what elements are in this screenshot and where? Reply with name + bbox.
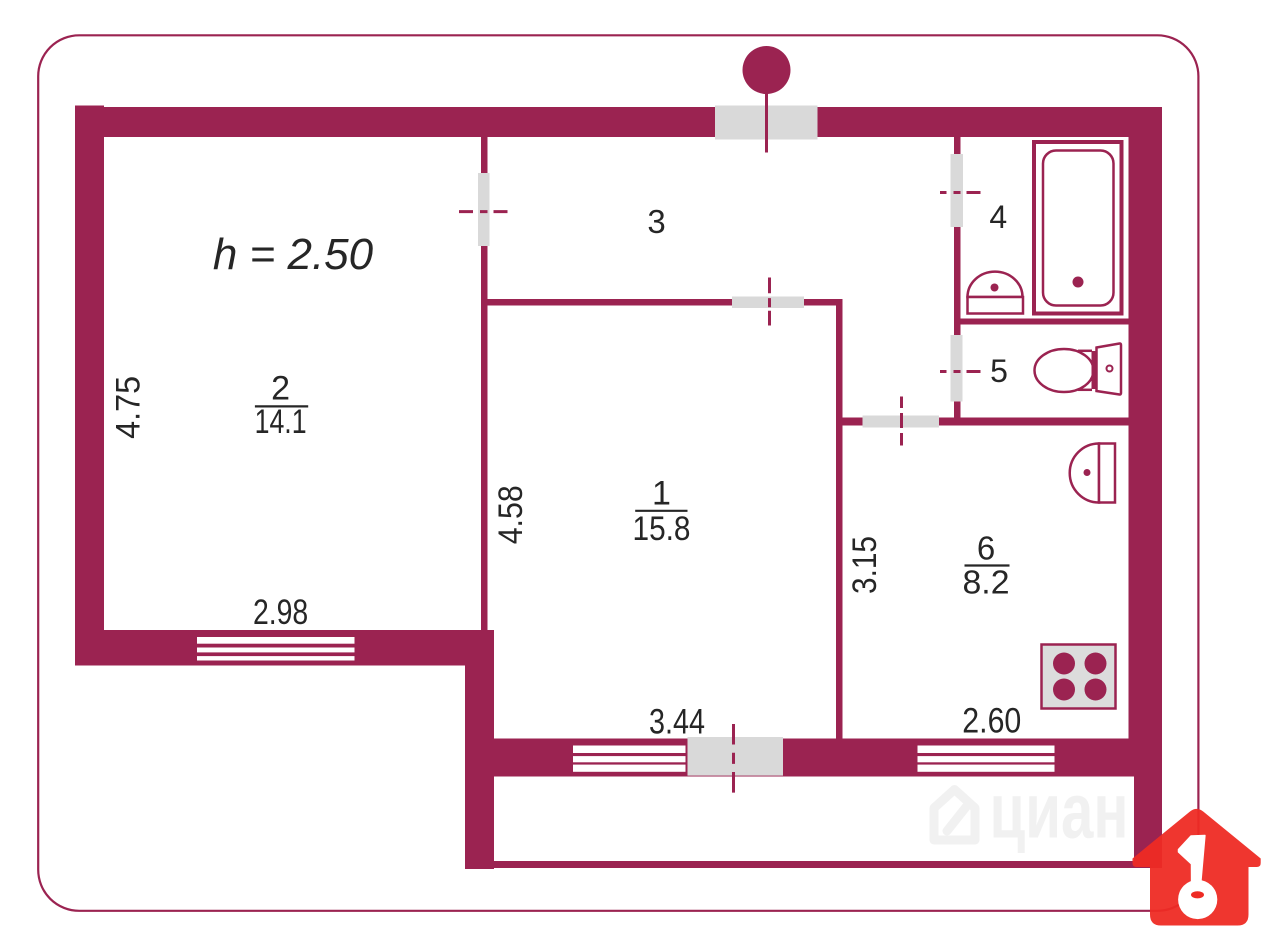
svg-text:6: 6: [977, 530, 995, 567]
svg-text:2.98: 2.98: [253, 593, 308, 632]
svg-text:4: 4: [989, 199, 1007, 235]
svg-text:15.8: 15.8: [633, 510, 691, 548]
svg-text:1: 1: [652, 474, 671, 512]
svg-text:2.60: 2.60: [962, 702, 1021, 741]
svg-text:3.44: 3.44: [649, 703, 705, 742]
svg-text:4.58: 4.58: [492, 485, 530, 544]
svg-text:14.1: 14.1: [255, 403, 307, 441]
svg-text:h = 2.50: h = 2.50: [213, 230, 374, 279]
svg-text:3: 3: [647, 203, 665, 240]
svg-text:5: 5: [990, 353, 1008, 389]
svg-text:3.15: 3.15: [846, 536, 884, 594]
svg-text:8.2: 8.2: [963, 564, 1010, 601]
svg-text:2: 2: [271, 370, 290, 408]
svg-text:циан: циан: [990, 767, 1129, 855]
svg-text:4.75: 4.75: [110, 376, 148, 439]
